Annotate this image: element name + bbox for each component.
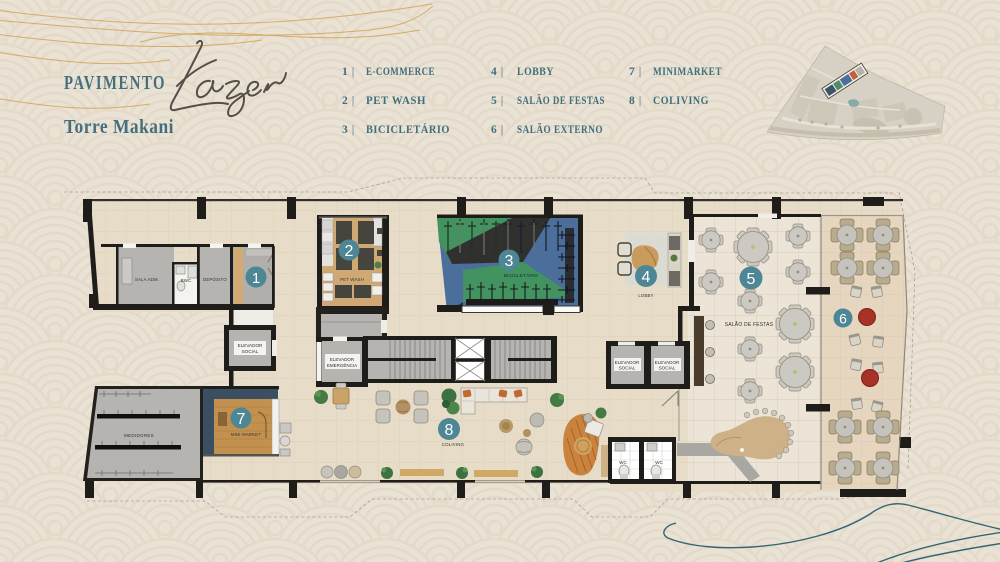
svg-text:4: 4 bbox=[642, 269, 651, 286]
svg-text:MEDIDORES: MEDIDORES bbox=[124, 433, 154, 438]
svg-text:COLIVING: COLIVING bbox=[653, 95, 709, 107]
svg-text:ELEVADOR: ELEVADOR bbox=[330, 357, 355, 362]
svg-text:SOCIAL: SOCIAL bbox=[659, 366, 676, 371]
svg-text:6 |: 6 | bbox=[491, 124, 504, 136]
svg-text:COLIVING: COLIVING bbox=[442, 442, 465, 447]
svg-text:SALÃO DE FESTAS: SALÃO DE FESTAS bbox=[725, 321, 774, 328]
svg-text:5 |: 5 | bbox=[491, 95, 504, 107]
svg-text:3: 3 bbox=[505, 253, 514, 270]
svg-text:EMERGÊNCIA: EMERGÊNCIA bbox=[327, 361, 357, 368]
svg-text:ELEVADOR: ELEVADOR bbox=[238, 343, 263, 348]
svg-text:BICICLETÁRIO: BICICLETÁRIO bbox=[366, 122, 450, 136]
svg-text:MINIMARKET: MINIMARKET bbox=[653, 66, 722, 78]
svg-text:PET WASH: PET WASH bbox=[340, 277, 364, 282]
svg-text:WC: WC bbox=[655, 460, 663, 465]
svg-text:E-COMMERCE: E-COMMERCE bbox=[366, 66, 435, 78]
svg-text:1: 1 bbox=[252, 270, 260, 287]
svg-text:WC: WC bbox=[619, 460, 627, 465]
svg-text:BICICLETÁRIO: BICICLETÁRIO bbox=[504, 272, 539, 278]
svg-text:2 |: 2 | bbox=[342, 95, 355, 107]
svg-text:SALA ADM.: SALA ADM. bbox=[135, 277, 159, 282]
svg-text:PET WASH: PET WASH bbox=[366, 95, 426, 107]
svg-text:8 |: 8 | bbox=[629, 95, 642, 107]
svg-text:SOCIAL: SOCIAL bbox=[242, 349, 259, 354]
svg-text:SALÃO EXTERNO: SALÃO EXTERNO bbox=[517, 122, 603, 136]
svg-text:ELEVADOR: ELEVADOR bbox=[615, 360, 640, 365]
svg-text:2: 2 bbox=[345, 243, 354, 260]
svg-text:3 |: 3 | bbox=[342, 124, 355, 136]
svg-text:6: 6 bbox=[839, 311, 847, 327]
svg-text:5: 5 bbox=[747, 271, 756, 288]
svg-text:MINI MARKET: MINI MARKET bbox=[231, 432, 262, 437]
svg-text:7 |: 7 | bbox=[629, 66, 642, 78]
svg-text:SALÃO DE FESTAS: SALÃO DE FESTAS bbox=[517, 93, 605, 107]
svg-text:4 |: 4 | bbox=[491, 66, 504, 78]
svg-text:BWC: BWC bbox=[181, 278, 192, 283]
svg-text:ELEVADOR: ELEVADOR bbox=[655, 360, 680, 365]
svg-text:7: 7 bbox=[237, 411, 246, 428]
svg-text:LOBBY: LOBBY bbox=[638, 293, 653, 298]
svg-text:DEPÓSITO: DEPÓSITO bbox=[203, 277, 227, 282]
svg-text:PAVIMENTO: PAVIMENTO bbox=[64, 72, 166, 94]
svg-text:1 |: 1 | bbox=[342, 66, 355, 78]
svg-text:Torre Makani: Torre Makani bbox=[64, 116, 174, 138]
svg-text:SOCIAL: SOCIAL bbox=[619, 366, 636, 371]
svg-text:LOBBY: LOBBY bbox=[517, 66, 554, 78]
svg-text:8: 8 bbox=[445, 422, 454, 439]
